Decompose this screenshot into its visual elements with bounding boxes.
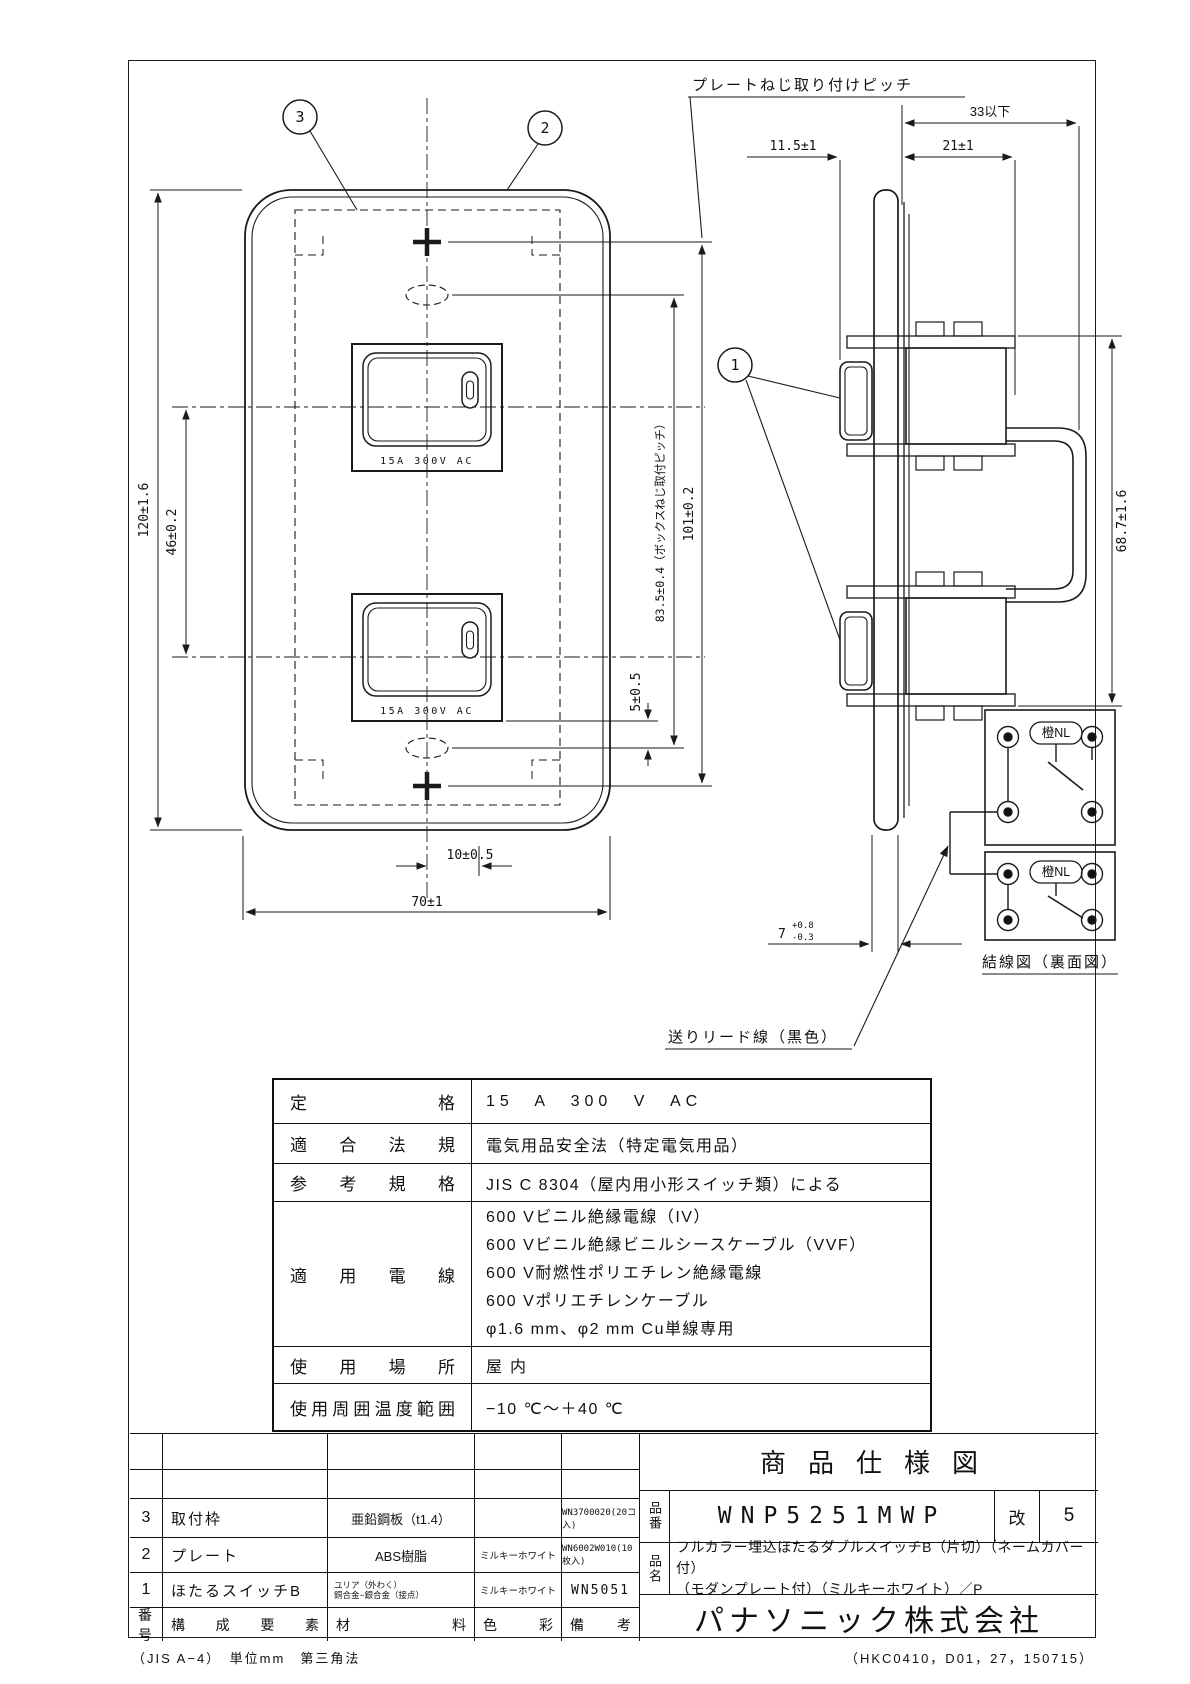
spec-value-wires: 600 Vビニル絶縁電線（IV） 600 Vビニル絶縁ビニルシースケーブル（VV… <box>472 1202 930 1347</box>
parts-header-no: 番号 <box>130 1608 163 1641</box>
dim-5: 5±0.5 <box>629 672 644 711</box>
title-band: 3 取付枠 亜鉛鋼板（t1.4） WN3700020(20コ入) 2 プレート … <box>130 1433 1098 1640</box>
wire-line: 600 Vビニル絶縁電線（IV） <box>486 1204 711 1232</box>
dim-46: 46±0.2 <box>165 509 180 556</box>
dim-68-7: 68.7±1.6 <box>1115 490 1130 553</box>
part-number-label: 品番 <box>640 1491 670 1543</box>
dim-101: 101±0.2 <box>682 487 697 542</box>
lead-wire-label: 送りリード線（黒色） <box>668 1029 838 1046</box>
part-material-1: ユリア（外わく） 銅合金−銀合金（接点） <box>328 1573 475 1608</box>
parts-header-color: 色彩 <box>475 1608 562 1641</box>
lead-wire-lines <box>854 812 997 1046</box>
lead-wire-loop <box>1006 428 1086 602</box>
parts-header-note: 備考 <box>562 1608 640 1641</box>
spec-table: 定格 15 A 300 V AC 適合法規 電気用品安全法（特定電気用品） 参考… <box>272 1078 932 1432</box>
part-no-1: 1 <box>130 1573 163 1608</box>
spec-label-location: 使用場所 <box>274 1347 472 1384</box>
footer-right: （HKC0410，D01，27，150715） <box>845 1648 1094 1667</box>
spec-label-law: 適合法規 <box>274 1124 472 1164</box>
part-color-1: ミルキーホワイト <box>475 1573 562 1608</box>
wiring-title-label: 結線図（裏面図） <box>982 953 1118 971</box>
spec-value-location: 屋内 <box>472 1347 930 1384</box>
spec-label-wires: 適用電線 <box>274 1202 472 1347</box>
footer-left: （JIS A−4） 単位mm 第三角法 <box>132 1648 360 1667</box>
part-note-3: WN3700020(20コ入) <box>562 1499 640 1538</box>
spec-value-law: 電気用品安全法（特定電気用品） <box>472 1124 930 1164</box>
dim-7: 7 <box>778 927 786 942</box>
spec-label-rating: 定格 <box>274 1080 472 1124</box>
dimensions <box>150 105 1122 952</box>
lamp-window-1 <box>462 372 478 408</box>
part-color-3 <box>475 1499 562 1538</box>
revision-value: 5 <box>1040 1491 1098 1543</box>
revision-label: 改 <box>995 1491 1040 1543</box>
wire-line: 600 Vビニル絶縁ビニルシースケーブル（VVF） <box>486 1232 867 1260</box>
dim-21: 21±1 <box>942 139 973 154</box>
wire-line: 600 Vポリエチレンケーブル <box>486 1288 709 1316</box>
part-number: WNP5251MWP <box>670 1491 995 1543</box>
wire-line: φ1.6 mm、φ2 mm Cu単線専用 <box>486 1316 735 1344</box>
spec-value-temp: −10 ℃～＋40 ℃ <box>472 1384 930 1430</box>
dim-7-tol-minus: -0.3 <box>792 933 814 943</box>
spec-label-temp: 使用周囲温度範囲 <box>274 1384 472 1430</box>
switch-rating-2: 15A 300V AC <box>380 706 474 717</box>
sheet-title: 商品仕様図 <box>640 1434 1098 1491</box>
parts-table: 3 取付枠 亜鉛鋼板（t1.4） WN3700020(20コ入) 2 プレート … <box>130 1434 640 1640</box>
part-color-2: ミルキーホワイト <box>475 1538 562 1573</box>
balloon-2-number: 2 <box>540 119 549 137</box>
title-block: 商品仕様図 品番 WNP5251MWP 改 5 品名 フルカラー埋込ほたるダブル… <box>640 1434 1098 1640</box>
balloon-1-number: 1 <box>730 356 739 374</box>
part-note-1: WN5051 <box>562 1573 640 1608</box>
part-note-2: WN6002W010(10枚入) <box>562 1538 640 1573</box>
spec-value-standard: JIS C 8304（屋内用小形スイッチ類）による <box>472 1164 930 1202</box>
dim-120: 120±1.6 <box>137 483 152 538</box>
part-material-2: ABS樹脂 <box>328 1538 475 1573</box>
product-name-label: 品名 <box>640 1543 670 1594</box>
switch-rating-1: 15A 300V AC <box>380 456 474 467</box>
product-name: フルカラー埋込ほたるダブルスイッチB（片切）（ネームカバー付） （モダンプレート… <box>670 1543 1098 1594</box>
company-name: パナソニック株式会社 <box>640 1595 1098 1640</box>
wire-line: 600 V耐燃性ポリエチレン絶縁電線 <box>486 1260 763 1288</box>
side-switch-unit-1 <box>840 322 1015 470</box>
lamp-label-2: 橙NL <box>1042 864 1071 879</box>
side-switch-unit-2 <box>840 572 1015 720</box>
parts-header-material: 材料 <box>328 1608 475 1641</box>
part-no-2: 2 <box>130 1538 163 1573</box>
dim-83-5: 83.5±0.4（ボックスねじ取付ピッチ） <box>653 418 667 623</box>
part-no-3: 3 <box>130 1499 163 1538</box>
part-component-1: ほたるスイッチB <box>163 1573 328 1608</box>
spec-label-standard: 参考規格 <box>274 1164 472 1202</box>
lamp-window-2 <box>462 622 478 658</box>
dim-7-tol-plus: +0.8 <box>792 921 814 931</box>
balloon-3-number: 3 <box>295 108 304 126</box>
lamp-label-1: 橙NL <box>1042 725 1071 740</box>
part-material-3: 亜鉛鋼板（t1.4） <box>328 1499 475 1538</box>
balloon-leaders <box>310 97 840 640</box>
part-component-2: プレート <box>163 1538 328 1573</box>
parts-header-component: 構成要素 <box>163 1608 328 1641</box>
part-component-3: 取付枠 <box>163 1499 328 1538</box>
dim-33: 33以下 <box>970 104 1010 119</box>
dim-70: 70±1 <box>411 895 442 910</box>
dim-11-5: 11.5±1 <box>770 139 817 154</box>
front-view <box>172 98 705 902</box>
plate-screw-pitch-label: プレートねじ取り付けピッチ <box>692 77 913 94</box>
spec-value-rating: 15 A 300 V AC <box>472 1080 930 1124</box>
dim-10: 10±0.5 <box>447 848 494 863</box>
